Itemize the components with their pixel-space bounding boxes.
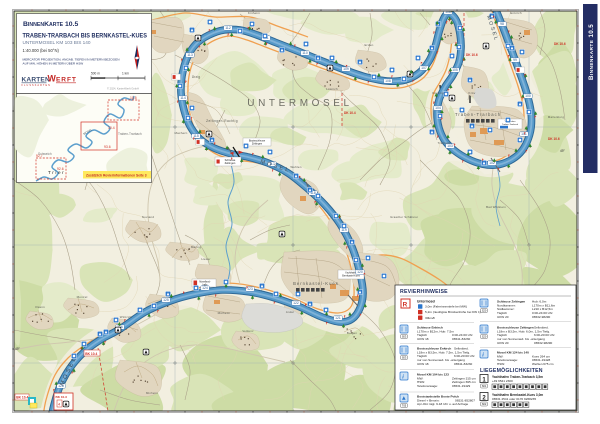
svg-text:T05: T05 [402, 404, 407, 408]
svg-text:06532-98290: 06532-98290 [534, 341, 553, 345]
svg-text:Moselland-: Moselland- [199, 282, 210, 284]
svg-text:UNTERMOSEL KM 103 BIS 140: UNTERMOSEL KM 103 BIS 140 [23, 40, 91, 46]
svg-text:© 2024, KartenWerft GmbH: © 2024, KartenWerft GmbH [107, 87, 139, 91]
svg-text:125: 125 [163, 298, 169, 302]
svg-text:Ürzig: Ürzig [192, 75, 200, 79]
svg-text:UNTERMOSEL: UNTERMOSEL [247, 98, 352, 109]
svg-text:Trarbach: Trarbach [438, 141, 451, 145]
svg-text:Kinheim: Kinheim [248, 11, 261, 15]
svg-text:KARTEN: KARTEN [22, 77, 50, 84]
svg-text:S03: S03 [402, 356, 407, 360]
svg-text:113: 113 [187, 53, 193, 57]
svg-text:UKW 18: UKW 18 [417, 362, 429, 366]
svg-text:DK 10.6: DK 10.6 [548, 137, 560, 141]
svg-text:100: 100 [525, 94, 531, 98]
svg-text:S03: S03 [402, 335, 407, 339]
svg-text:BINNENKARTE 10.5: BINNENKARTE 10.5 [588, 24, 595, 80]
svg-text:Zusätzlich Revierinformationen: Zusätzlich Revierinformationen Seite 3 [86, 173, 147, 177]
svg-text:Zeltingen-Rachtig: Zeltingen-Rachtig [206, 119, 238, 123]
svg-text:110: 110 [302, 51, 308, 55]
svg-text:Erden: Erden [364, 43, 373, 47]
svg-text:HSW:: HSW: [497, 362, 505, 366]
svg-text:5,2m (niedrigste Brückenhöhe b: 5,2m (niedrigste Brückenhöhe bei KW 1) [425, 310, 481, 314]
svg-text:S20: S20 [482, 309, 487, 313]
svg-text:+49 6541 2300: +49 6541 2300 [492, 379, 513, 383]
svg-text:Zeltingen: Zeltingen [252, 143, 263, 146]
svg-text:Bernkastel-Kues: Bernkastel-Kues [342, 275, 360, 278]
svg-text:FLUSSKARTEN: FLUSSKARTEN [22, 84, 51, 87]
svg-text:112: 112 [225, 26, 231, 30]
svg-text:Bernkastel-Kues: Bernkastel-Kues [293, 281, 339, 286]
svg-text:Traben-Trarbach: Traben-Trarbach [455, 112, 501, 117]
svg-text:Telefonansage:: Telefonansage: [417, 384, 438, 388]
svg-text:Veldenz: Veldenz [242, 329, 254, 333]
svg-text:06531-19429: 06531-19429 [452, 384, 471, 388]
svg-text:Wehlen: Wehlen [290, 165, 301, 169]
svg-text:98: 98 [500, 22, 504, 26]
svg-text:1:40.000 (bei 50°N): 1:40.000 (bei 50°N) [23, 48, 60, 53]
svg-text:Wehlen 675 cm: Wehlen 675 cm [532, 362, 554, 366]
svg-text:DK 10.6: DK 10.6 [554, 42, 566, 46]
svg-text:49°: 49° [560, 149, 566, 153]
svg-text:Trier: Trier [48, 170, 65, 175]
svg-text:Lieser: Lieser [201, 257, 210, 261]
svg-text:500 m: 500 m [91, 72, 100, 76]
svg-text:S02: S02 [482, 402, 487, 406]
svg-text:107: 107 [421, 66, 427, 70]
svg-text:114: 114 [180, 96, 186, 100]
svg-text:30km/h: 30km/h [425, 316, 435, 320]
svg-text:Untermosel: Untermosel [417, 300, 435, 304]
svg-text:Kövenig: Kövenig [432, 91, 444, 95]
svg-text:49°: 49° [15, 347, 21, 351]
svg-text:Mülheim: Mülheim [218, 311, 231, 315]
svg-text:BK 10.4: BK 10.4 [85, 352, 97, 356]
svg-text:06541-83230: 06541-83230 [452, 337, 471, 341]
svg-text:BK 10.3: BK 10.3 [56, 395, 68, 399]
svg-text:Graacher Schäferei: Graacher Schäferei [390, 215, 418, 219]
svg-text:06532-98290: 06532-98290 [532, 315, 551, 319]
svg-text:Wintrich: Wintrich [120, 315, 133, 319]
svg-text:10.5: 10.5 [130, 96, 137, 100]
svg-text:Lösnich: Lösnich [326, 87, 338, 91]
svg-text:06541-83230: 06541-83230 [454, 362, 473, 366]
svg-text:S20: S20 [482, 335, 487, 339]
svg-text:AUF MW, HÖHEN IN METERN ÜBER H: AUF MW, HÖHEN IN METERN ÜBER HSW [23, 62, 84, 66]
svg-text:DK 10.4: DK 10.4 [344, 111, 356, 115]
svg-text:122: 122 [293, 301, 299, 305]
svg-text:ERFT: ERFT [56, 77, 77, 84]
svg-text:R: R [403, 301, 408, 308]
svg-text:Marienburg: Marienburg [548, 115, 564, 119]
svg-text:Enkirch: Enkirch [510, 11, 522, 15]
svg-text:Zeltingen: Zeltingen [225, 161, 236, 165]
svg-text:UKW 20: UKW 20 [497, 315, 509, 319]
svg-text:101: 101 [521, 132, 527, 136]
svg-text:3,0m (Fahrrinnentiefe bei MW): 3,0m (Fahrrinnentiefe bei MW) [425, 305, 467, 309]
svg-text:1 km: 1 km [122, 72, 129, 76]
svg-text:99: 99 [513, 58, 517, 62]
svg-text:Traben-Trarbach: Traben-Trarbach [502, 123, 519, 126]
svg-text:109: 109 [343, 67, 349, 71]
svg-text:BK 10.4: BK 10.4 [16, 396, 28, 400]
svg-text:123: 123 [247, 287, 253, 291]
svg-text:105: 105 [452, 68, 458, 72]
svg-text:Schweich: Schweich [38, 152, 52, 156]
svg-text:Minheim: Minheim [146, 391, 158, 395]
svg-text:115: 115 [193, 134, 199, 138]
svg-text:Andel: Andel [286, 310, 294, 314]
svg-text:104: 104 [435, 106, 441, 110]
svg-text:Osann: Osann [35, 305, 45, 309]
svg-text:Bad Wildstein: Bad Wildstein [486, 205, 506, 209]
svg-text:UKW 20: UKW 20 [497, 341, 509, 345]
svg-text:120: 120 [357, 270, 363, 274]
svg-text:BINNENKARTE 10.5: BINNENKARTE 10.5 [23, 21, 78, 28]
svg-text:93.6: 93.6 [104, 145, 111, 149]
svg-text:Noviand: Noviand [142, 215, 155, 219]
svg-text:REVIERHINWEISE: REVIERHINWEISE [400, 289, 448, 295]
svg-text:LIEGEMÖGLICHKEITEN: LIEGEMÖGLICHKEITEN [480, 367, 543, 374]
svg-text:Traben-Trarbach: Traben-Trarbach [118, 132, 142, 136]
svg-text:121: 121 [335, 316, 341, 320]
svg-text:10.4: 10.4 [108, 126, 115, 130]
svg-text:Apr-Okt: tägl. 9-18 Uhr u. auf: Apr-Okt: tägl. 9-18 Uhr u. auf Anfrage [417, 402, 469, 406]
svg-text:06531 2541 oder 0170 9268235: 06531 2541 oder 0170 9268235 [492, 397, 536, 401]
svg-text:Machern: Machern [174, 131, 187, 135]
svg-text:Monzel: Monzel [77, 295, 88, 299]
svg-text:UKW 18: UKW 18 [417, 337, 429, 341]
svg-text:DK 10.6: DK 10.6 [466, 53, 478, 57]
svg-text:108: 108 [385, 79, 391, 83]
svg-text:TRABEN-TRARBACH BIS BERNKASTEL: TRABEN-TRARBACH BIS BERNKASTEL-KUES [23, 33, 148, 40]
svg-text:Kröv: Kröv [469, 91, 476, 95]
svg-text:S01: S01 [482, 384, 487, 388]
svg-text:124: 124 [202, 286, 208, 290]
svg-text:Burgen: Burgen [347, 331, 357, 335]
svg-text:Maring: Maring [191, 245, 202, 249]
